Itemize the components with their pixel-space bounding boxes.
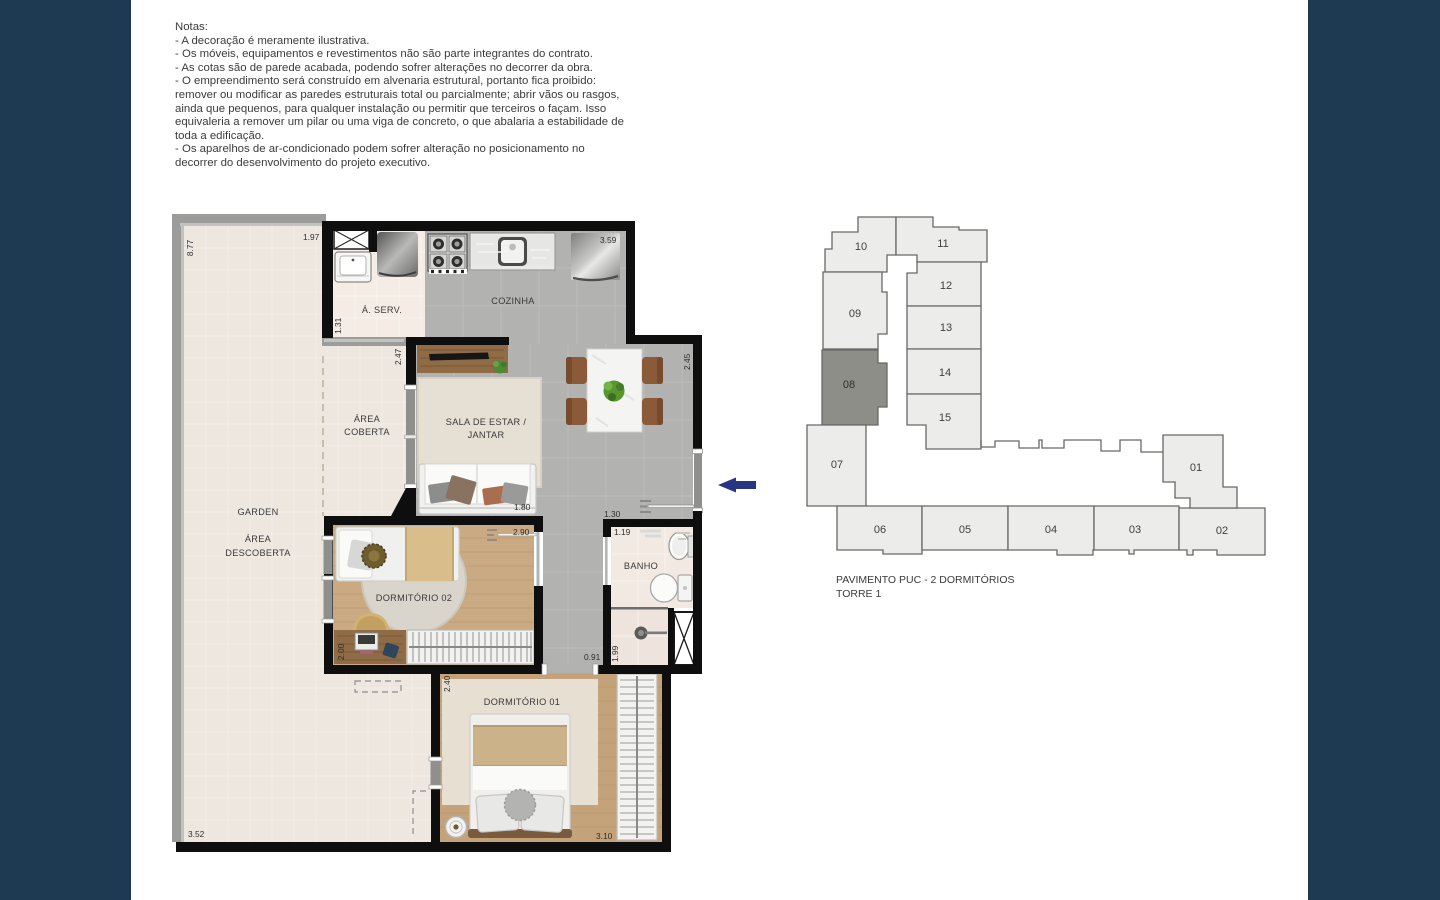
svg-text:2.90: 2.90 [513, 527, 530, 537]
svg-text:COZINHA: COZINHA [491, 296, 535, 306]
svg-text:3.59: 3.59 [600, 235, 617, 245]
svg-text:JANTAR: JANTAR [468, 430, 505, 440]
svg-text:03: 03 [1129, 524, 1141, 536]
svg-text:2.00: 2.00 [336, 643, 346, 660]
svg-text:DORMITÓRIO 02: DORMITÓRIO 02 [376, 593, 452, 603]
svg-text:COBERTA: COBERTA [344, 427, 390, 437]
svg-text:1.30: 1.30 [604, 509, 621, 519]
svg-text:2.45: 2.45 [682, 353, 692, 370]
svg-text:8.77: 8.77 [185, 240, 195, 257]
svg-text:06: 06 [874, 524, 886, 536]
svg-text:15: 15 [939, 412, 951, 424]
svg-text:13: 13 [940, 322, 952, 334]
svg-text:3.10: 3.10 [596, 831, 613, 841]
svg-text:3.52: 3.52 [188, 829, 205, 839]
svg-text:05: 05 [959, 524, 971, 536]
svg-text:1.19: 1.19 [614, 527, 631, 537]
svg-text:1.80: 1.80 [514, 502, 531, 512]
svg-text:14: 14 [939, 367, 951, 379]
svg-text:02: 02 [1216, 525, 1228, 537]
svg-text:01: 01 [1190, 462, 1202, 474]
svg-text:09: 09 [849, 308, 861, 320]
svg-text:1.97: 1.97 [303, 232, 320, 242]
svg-text:2.40: 2.40 [442, 675, 452, 692]
svg-text:07: 07 [831, 459, 843, 471]
svg-text:1.99: 1.99 [610, 645, 620, 662]
svg-text:DORMITÓRIO 01: DORMITÓRIO 01 [484, 697, 560, 707]
svg-text:10: 10 [855, 241, 867, 253]
svg-text:1.31: 1.31 [333, 317, 343, 334]
svg-text:2.47: 2.47 [393, 348, 403, 365]
svg-text:DESCOBERTA: DESCOBERTA [225, 548, 291, 558]
svg-text:ÁREA: ÁREA [245, 534, 272, 544]
svg-text:0.91: 0.91 [584, 652, 601, 662]
svg-text:Á. SERV.: Á. SERV. [362, 305, 402, 315]
svg-text:SALA DE ESTAR /: SALA DE ESTAR / [446, 417, 527, 427]
svg-text:BANHO: BANHO [624, 561, 658, 571]
svg-text:11: 11 [937, 238, 948, 250]
svg-text:ÁREA: ÁREA [354, 414, 381, 424]
svg-text:12: 12 [940, 280, 952, 292]
svg-text:GARDEN: GARDEN [237, 507, 278, 517]
svg-text:04: 04 [1045, 524, 1057, 536]
svg-text:08: 08 [843, 379, 855, 391]
